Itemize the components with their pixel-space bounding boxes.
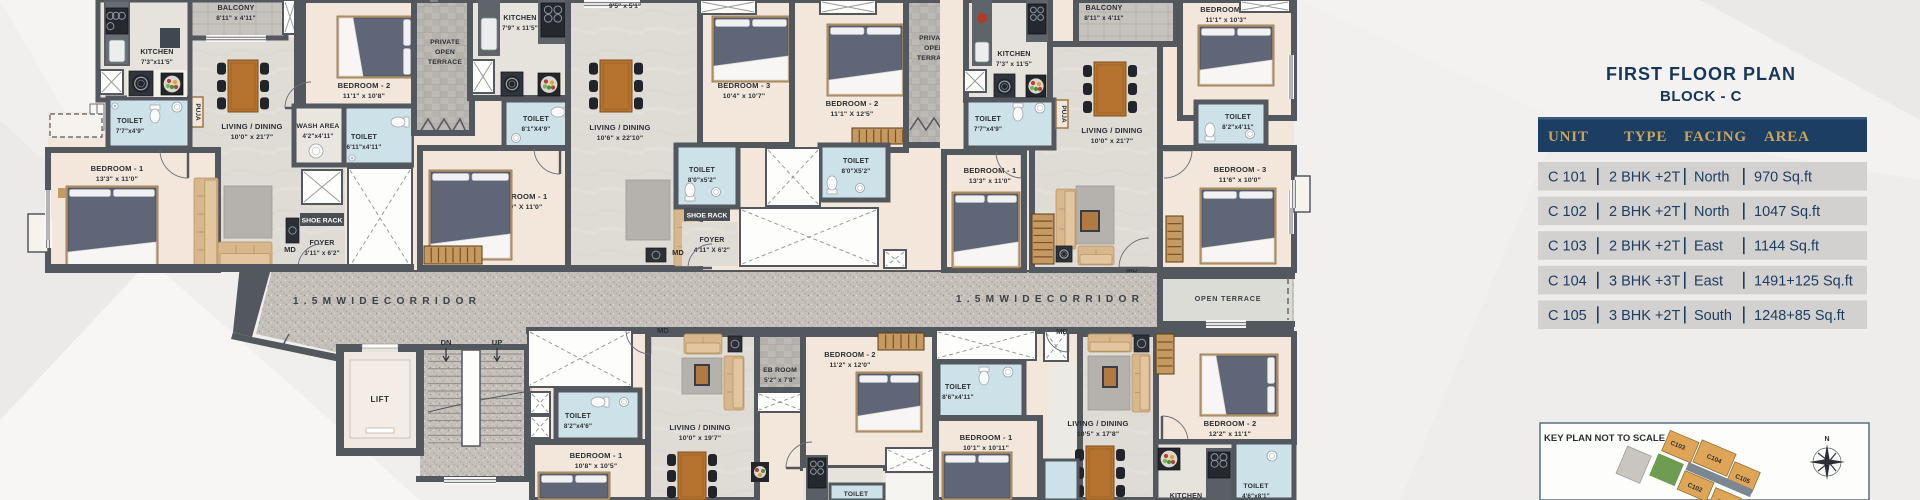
- svg-text:North: North: [1694, 204, 1729, 220]
- svg-text:PUJA: PUJA: [194, 103, 201, 121]
- svg-text:BEDROOM - 1: BEDROOM - 1: [91, 164, 144, 173]
- svg-text:7'7"x4'9": 7'7"x4'9": [116, 128, 144, 135]
- svg-text:1491+125 Sq.ft: 1491+125 Sq.ft: [1754, 273, 1853, 289]
- svg-text:C 103: C 103: [1548, 239, 1587, 255]
- svg-text:11'1" x 10'8": 11'1" x 10'8": [343, 93, 385, 100]
- svg-text:TOILET: TOILET: [843, 158, 869, 165]
- svg-text:7'7"x4'9": 7'7"x4'9": [974, 126, 1002, 133]
- svg-text:OPEN: OPEN: [435, 49, 455, 56]
- svg-text:East: East: [1694, 273, 1723, 289]
- svg-text:11'1" x 10'3": 11'1" x 10'3": [1206, 17, 1247, 24]
- svg-text:C 104: C 104: [1548, 273, 1587, 289]
- svg-text:BEDROOM - 1: BEDROOM - 1: [964, 166, 1017, 175]
- svg-text:4'2"x4'11": 4'2"x4'11": [302, 133, 333, 140]
- svg-text:TOILET: TOILET: [117, 118, 143, 125]
- svg-text:OPEN TERRACE: OPEN TERRACE: [1195, 294, 1262, 303]
- svg-text:1248+85 Sq.ft: 1248+85 Sq.ft: [1754, 308, 1845, 324]
- svg-text:LIVING / DINING: LIVING / DINING: [589, 123, 650, 132]
- svg-text:BEDROOM - 1: BEDROOM - 1: [960, 433, 1013, 442]
- svg-text:1047 Sq.ft: 1047 Sq.ft: [1754, 204, 1820, 220]
- svg-text:KITCHEN: KITCHEN: [1170, 493, 1203, 500]
- svg-text:10'0" x 21'7": 10'0" x 21'7": [1091, 138, 1134, 145]
- svg-text:BEDROOM - 2: BEDROOM - 2: [826, 99, 879, 108]
- svg-text:3 BHK +2T: 3 BHK +2T: [1609, 308, 1680, 324]
- svg-text:7'9" x 11'5": 7'9" x 11'5": [502, 25, 538, 32]
- svg-text:KITCHEN: KITCHEN: [997, 49, 1030, 58]
- svg-text:3'11" x 6'2": 3'11" x 6'2": [304, 250, 340, 257]
- svg-text:1 . 5 M W I D E C O R R I D: 1 . 5 M W I D E C O R R I D O R: [293, 296, 477, 307]
- svg-text:SHOE RACK: SHOE RACK: [302, 218, 343, 225]
- svg-text:8'2"x4'6": 8'2"x4'6": [564, 423, 592, 430]
- svg-text:BALCONY: BALCONY: [1086, 3, 1123, 12]
- svg-text:8'11" x 4'11": 8'11" x 4'11": [1084, 15, 1123, 22]
- svg-text:10'0" x 19'7": 10'0" x 19'7": [679, 435, 722, 442]
- svg-text:8'0"X5'2": 8'0"X5'2": [842, 168, 871, 175]
- svg-text:970 Sq.ft: 970 Sq.ft: [1754, 170, 1812, 186]
- svg-text:UP: UP: [492, 338, 502, 347]
- svg-text:TOILET: TOILET: [945, 384, 971, 391]
- svg-text:9'5" x 5'1": 9'5" x 5'1": [609, 3, 641, 10]
- svg-text:WASH AREA: WASH AREA: [296, 123, 339, 130]
- svg-text:2 BHK +2T: 2 BHK +2T: [1609, 170, 1680, 186]
- svg-text:C 105: C 105: [1548, 308, 1587, 324]
- svg-text:DN: DN: [441, 338, 452, 347]
- svg-text:BLOCK - C: BLOCK - C: [1660, 88, 1742, 105]
- svg-text:BEDROOM - 2: BEDROOM - 2: [824, 350, 875, 359]
- svg-text:LIVING / DINING: LIVING / DINING: [669, 423, 730, 432]
- svg-text:BALCONY: BALCONY: [218, 3, 255, 12]
- svg-text:TOILET: TOILET: [351, 134, 377, 141]
- svg-text:PRIVATE: PRIVATE: [430, 39, 460, 46]
- svg-text:13'3" x 11'0": 13'3" x 11'0": [96, 176, 138, 183]
- svg-text:TOILET: TOILET: [689, 167, 715, 174]
- svg-text:1144 Sq.ft: 1144 Sq.ft: [1754, 239, 1819, 255]
- svg-text:KITCHEN: KITCHEN: [140, 47, 173, 56]
- svg-text:KITCHEN: KITCHEN: [503, 13, 536, 22]
- svg-text:4'6"x8'1": 4'6"x8'1": [1242, 493, 1270, 500]
- svg-text:MD: MD: [657, 326, 669, 335]
- svg-text:7'3"x11'5": 7'3"x11'5": [141, 59, 173, 66]
- svg-text:11'2" x 12'0": 11'2" x 12'0": [830, 362, 871, 369]
- svg-text:TERRACE: TERRACE: [428, 59, 463, 66]
- svg-text:MD: MD: [1056, 327, 1068, 336]
- svg-text:MD: MD: [672, 248, 684, 257]
- svg-text:LIVING / DINING: LIVING / DINING: [221, 122, 282, 131]
- svg-text:10'6" x 22'10": 10'6" x 22'10": [597, 135, 644, 142]
- svg-text:UNIT: UNIT: [1548, 129, 1589, 145]
- svg-text:BEDROOM - 2: BEDROOM - 2: [1204, 419, 1257, 428]
- svg-text:11'6" x 10'0": 11'6" x 10'0": [1219, 177, 1261, 184]
- svg-text:TOILET: TOILET: [844, 491, 869, 498]
- svg-text:12'2" x 11'1": 12'2" x 11'1": [1209, 431, 1251, 438]
- svg-text:FACING: FACING: [1684, 129, 1747, 145]
- svg-text:10'5" x 17'8": 10'5" x 17'8": [1077, 431, 1120, 438]
- svg-text:BEDROOM - 3: BEDROOM - 3: [1214, 165, 1267, 174]
- svg-text:BEDROOM - 1: BEDROOM - 1: [570, 451, 623, 460]
- svg-text:PUJA: PUJA: [1060, 105, 1067, 123]
- svg-text:13'3" x 11'0": 13'3" x 11'0": [969, 178, 1011, 185]
- svg-text:MD: MD: [284, 245, 296, 254]
- svg-text:TOILET: TOILET: [523, 116, 549, 123]
- svg-text:LIFT: LIFT: [371, 395, 390, 404]
- svg-text:TOILET: TOILET: [975, 116, 1001, 123]
- svg-text:10'0" x 21'7": 10'0" x 21'7": [231, 134, 274, 141]
- svg-text:TOILET: TOILET: [565, 413, 591, 420]
- svg-text:BEDROOM - 2: BEDROOM - 2: [338, 81, 391, 90]
- svg-text:FOYER: FOYER: [699, 237, 724, 244]
- svg-text:South: South: [1694, 308, 1732, 324]
- svg-text:AREA: AREA: [1764, 129, 1810, 145]
- svg-text:SHOE RACK: SHOE RACK: [687, 213, 728, 220]
- svg-text:10'8" x 10'5": 10'8" x 10'5": [575, 463, 618, 470]
- svg-text:FIRST FLOOR PLAN: FIRST FLOOR PLAN: [1606, 64, 1796, 84]
- svg-text:TYPE: TYPE: [1624, 129, 1667, 145]
- svg-text:C 102: C 102: [1548, 204, 1587, 220]
- svg-text:LIVING / DINING: LIVING / DINING: [1081, 126, 1142, 135]
- svg-text:8'0"x5'2": 8'0"x5'2": [688, 177, 716, 184]
- svg-text:North: North: [1694, 170, 1729, 186]
- svg-text:11'1" X 12'5": 11'1" X 12'5": [831, 111, 874, 118]
- svg-text:MD: MD: [1126, 265, 1138, 274]
- svg-text:7'3" x 11'5": 7'3" x 11'5": [996, 61, 1032, 68]
- svg-text:8'1"X4'9": 8'1"X4'9": [522, 126, 551, 133]
- svg-text:8'6"x4'11": 8'6"x4'11": [942, 394, 974, 401]
- svg-text:East: East: [1694, 239, 1723, 255]
- svg-text:C 101: C 101: [1548, 170, 1587, 186]
- svg-text:N: N: [1824, 436, 1829, 443]
- svg-text:EB ROOM: EB ROOM: [763, 367, 797, 374]
- svg-text:6'11"x4'11": 6'11"x4'11": [347, 144, 382, 151]
- svg-text:10'4" x 10'7": 10'4" x 10'7": [723, 93, 766, 100]
- svg-text:LIVING / DINING: LIVING / DINING: [1067, 419, 1128, 428]
- svg-text:KEY PLAN NOT TO SCALE: KEY PLAN NOT TO SCALE: [1544, 433, 1665, 444]
- svg-text:10'1" x 10'11": 10'1" x 10'11": [963, 445, 1009, 452]
- svg-text:2 BHK +2T: 2 BHK +2T: [1609, 204, 1680, 220]
- svg-text:3 BHK +3T: 3 BHK +3T: [1609, 273, 1680, 289]
- svg-text:8'11" x 4'11": 8'11" x 4'11": [216, 15, 255, 22]
- svg-text:2 BHK +2T: 2 BHK +2T: [1609, 239, 1680, 255]
- svg-text:1 . 5 M W I D E C O R R I D: 1 . 5 M W I D E C O R R I D O R: [956, 294, 1140, 305]
- svg-text:TOILET: TOILET: [1225, 114, 1251, 121]
- svg-text:5'2" x 7'8": 5'2" x 7'8": [764, 377, 796, 384]
- svg-text:TOILET: TOILET: [1243, 483, 1269, 490]
